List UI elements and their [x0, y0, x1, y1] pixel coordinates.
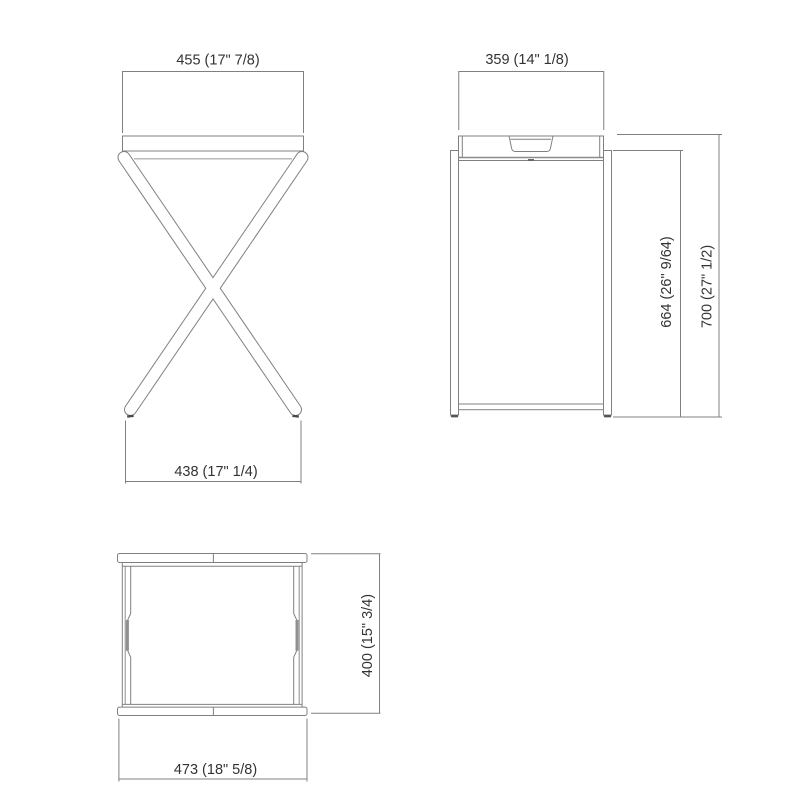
svg-text:400 (15" 3/4): 400 (15" 3/4) — [360, 594, 376, 677]
svg-text:473 (18" 5/8): 473 (18" 5/8) — [174, 762, 257, 778]
svg-text:359 (14" 1/8): 359 (14" 1/8) — [485, 52, 568, 68]
svg-text:700 (27" 1/2): 700 (27" 1/2) — [700, 245, 716, 328]
svg-text:455 (17" 7/8): 455 (17" 7/8) — [176, 53, 259, 69]
svg-text:438 (17" 1/4): 438 (17" 1/4) — [174, 464, 257, 480]
svg-text:664 (26" 9/64): 664 (26" 9/64) — [659, 236, 675, 327]
